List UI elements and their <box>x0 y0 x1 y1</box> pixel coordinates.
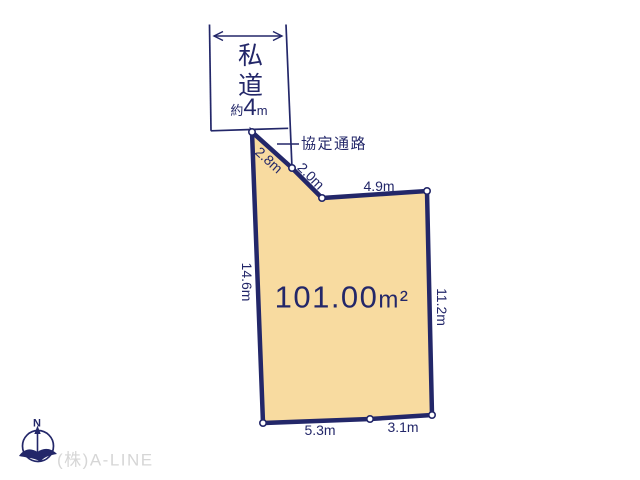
vertex-dot <box>319 195 325 201</box>
road-width-value: 4 <box>243 94 256 121</box>
vertex-dot <box>367 416 373 422</box>
private-road-right-line <box>286 25 292 169</box>
vertex-dot <box>424 188 430 194</box>
vertex-dot <box>249 129 255 135</box>
dimension-bottom-left: 5.3m <box>304 423 335 437</box>
dimension-right: 11.2m <box>435 288 449 326</box>
private-road-left-line <box>210 25 212 131</box>
parcel-area-value: 101.00 <box>275 280 379 315</box>
land-plot-diagram: 私道 約4m 協定通路 2.8m 2.0m 4.9m 14.6m 11.2m 5… <box>0 0 640 480</box>
company-watermark: (株)A-LINE <box>57 452 154 469</box>
parcel-area-unit: m² <box>378 287 409 314</box>
dimension-bottom-right: 3.1m <box>387 420 418 434</box>
private-road-width-label: 約4m <box>230 96 267 120</box>
land-parcel-polygon <box>252 132 432 423</box>
road-width-arrow <box>214 32 282 41</box>
diagram-canvas <box>0 0 640 480</box>
road-width-prefix: 約 <box>230 103 243 118</box>
vertex-dot <box>260 420 266 426</box>
dimension-top: 4.9m <box>363 179 394 193</box>
parcel-area-label: 101.00m² <box>275 282 410 313</box>
compass-icon <box>19 426 57 462</box>
private-road-label: 私道 <box>236 42 261 102</box>
passage-label: 協定通路 <box>301 137 367 152</box>
road-width-unit: m <box>257 103 268 118</box>
dimension-left: 14.6m <box>240 263 254 302</box>
vertex-dot <box>429 412 435 418</box>
compass-north-label: N <box>33 419 41 430</box>
